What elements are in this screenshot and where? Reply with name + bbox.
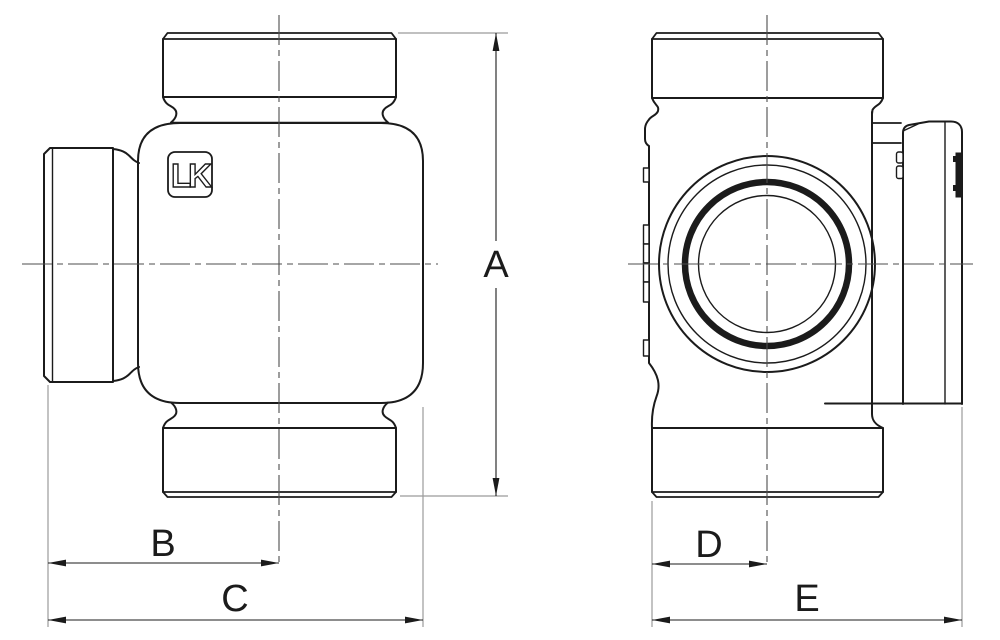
front-view: LK A B C bbox=[22, 15, 509, 627]
flange-tab bbox=[644, 340, 650, 356]
technical-drawing: LK A B C bbox=[0, 0, 1000, 640]
side-top-neck-left bbox=[649, 98, 658, 120]
knob-left-tab-lower bbox=[897, 166, 904, 179]
dimension-a-label: A bbox=[483, 244, 509, 286]
knob-grip-nub-bottom bbox=[953, 185, 956, 191]
front-top-neck-right bbox=[383, 97, 396, 123]
dimension-b-label: B bbox=[150, 523, 175, 565]
flange-tab bbox=[644, 244, 650, 263]
front-bottom-neck-right bbox=[383, 403, 396, 429]
flange-tab bbox=[644, 168, 650, 182]
flange-tab bbox=[644, 225, 650, 244]
dimension-d-arrow-right bbox=[749, 561, 767, 568]
dimension-d-label: D bbox=[695, 524, 722, 566]
dimension-d: D bbox=[652, 501, 767, 627]
knob bbox=[825, 122, 962, 405]
front-top-neck-left bbox=[163, 97, 176, 123]
dimension-e: E bbox=[652, 407, 962, 627]
lk-logo: LK bbox=[168, 152, 212, 197]
dimension-e-label: E bbox=[794, 578, 819, 620]
side-top-neck-right bbox=[872, 98, 883, 114]
knob-outline bbox=[903, 122, 962, 405]
dimension-b-arrow-left bbox=[48, 560, 66, 567]
dimension-c: C bbox=[48, 407, 423, 627]
side-bottom-right-step bbox=[872, 404, 883, 428]
front-flange bbox=[44, 148, 113, 382]
side-knob-bracket bbox=[872, 123, 901, 143]
flange-tab bbox=[644, 282, 650, 302]
lk-logo-text: LK bbox=[171, 157, 212, 194]
dimension-d-arrow-left bbox=[652, 561, 670, 568]
dimension-c-arrow-right bbox=[405, 617, 423, 624]
dimension-b-arrow-right bbox=[261, 560, 279, 567]
knob-left-tab-upper bbox=[897, 152, 904, 163]
front-bottom-neck-left bbox=[163, 403, 176, 429]
knob-grip-bar bbox=[956, 153, 963, 198]
dimension-e-arrow-right bbox=[944, 617, 962, 624]
front-flange-fillet-bottom bbox=[113, 367, 139, 381]
dimension-a-arrow-up bbox=[493, 33, 500, 51]
valve-dimension-drawing: LK A B C bbox=[0, 0, 1000, 640]
knob-grip-nub-top bbox=[953, 156, 956, 162]
flange-tab bbox=[644, 263, 650, 282]
front-flange-fillet-top bbox=[113, 149, 139, 163]
dimension-c-label: C bbox=[221, 578, 248, 620]
dimension-e-arrow-left bbox=[652, 617, 670, 624]
dimension-a-arrow-down bbox=[493, 478, 500, 496]
side-view: D E bbox=[628, 15, 973, 627]
dimension-c-arrow-left bbox=[48, 617, 66, 624]
